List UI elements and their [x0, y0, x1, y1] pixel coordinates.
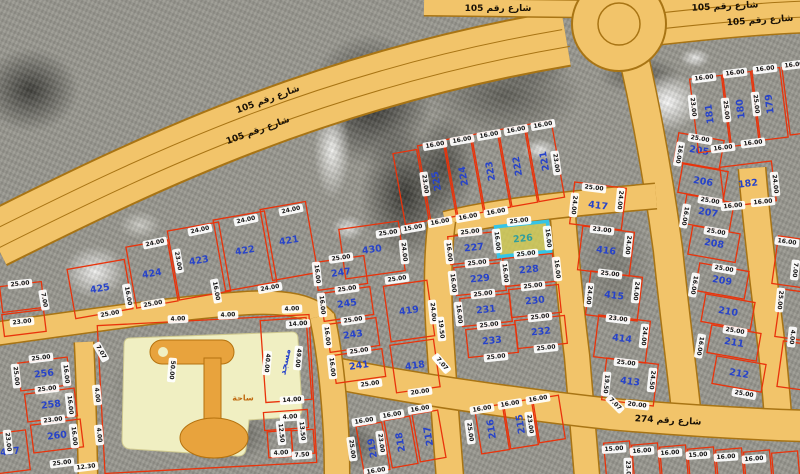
parcel-number: 225 [430, 170, 444, 191]
dimension-label: 16.00 [312, 261, 323, 286]
dimension-label: 16.00 [740, 137, 765, 148]
svg-text:16.00: 16.00 [660, 449, 679, 457]
dimension-label: 19.50 [601, 371, 612, 396]
dimension-label: 16.00 [454, 301, 465, 326]
parcel-number: 216 [485, 418, 499, 440]
dimension-label: 23.00 [605, 313, 630, 324]
dimension-label: 16.00 [750, 197, 775, 208]
dimension-label: 15.00 [601, 444, 626, 454]
dimension-label: 25.00 [346, 345, 371, 357]
dimension-label: 25.00 [464, 419, 476, 444]
parcel-number: 231 [476, 303, 497, 316]
dimension-label: 16.00 [65, 392, 76, 417]
svg-text:7.00: 7.00 [39, 292, 48, 308]
dimension-label: 25.00 [597, 268, 622, 279]
svg-text:4.00: 4.00 [220, 311, 235, 319]
dimension-label: 16.00 [476, 129, 502, 142]
dimension-label: 16.00 [713, 452, 738, 462]
dimension-label: 24.00 [770, 171, 781, 196]
dimension-label: 15.00 [685, 450, 710, 460]
parcel-number: 424 [141, 267, 163, 281]
dimension-label: 16.00 [722, 67, 747, 78]
dimension-label: 23.00 [550, 150, 562, 175]
svg-text:14.00: 14.00 [288, 320, 307, 328]
dimension-label: 25.00 [328, 252, 353, 264]
svg-text:16.00: 16.00 [632, 447, 651, 455]
dimension-label: 25.00 [11, 363, 22, 388]
svg-text:14.00: 14.00 [282, 396, 301, 404]
parcel[interactable] [782, 65, 800, 135]
road-label: شارع رقم 105 [465, 4, 532, 14]
dimension-label: 23.00 [688, 94, 699, 119]
dimension-label: 25.00 [375, 227, 400, 239]
dimension-label: 15.00 [400, 222, 426, 235]
dimension-label: 25.00 [520, 281, 545, 292]
svg-text:25.00: 25.00 [349, 346, 369, 356]
dimension-label: 25.00 [7, 279, 32, 290]
dimension-label: 24.00 [399, 239, 410, 264]
dimension-label: 16.00 [657, 448, 682, 458]
dimension-label: 16.00 [741, 454, 766, 464]
parcel-number: 418 [404, 359, 426, 373]
parcel-number: 206 [692, 175, 714, 189]
parcel-number: 229 [470, 272, 491, 285]
svg-text:23.00: 23.00 [420, 174, 430, 194]
dimension-label: 4.00 [281, 304, 302, 313]
dimension-label: 14.00 [285, 319, 310, 329]
svg-text:23.00: 23.00 [551, 153, 561, 173]
parcel-number: 415 [603, 289, 624, 302]
dimension-label: 23.00 [419, 171, 431, 196]
svg-text:4.00: 4.00 [282, 413, 297, 421]
parcel-number: 414 [611, 332, 632, 345]
parcel-number: 180 [734, 98, 747, 119]
dimension-label: 16.00 [688, 272, 701, 298]
svg-text:16.00: 16.00 [777, 237, 797, 247]
dimension-label: 25.00 [334, 283, 359, 295]
dimension-label: 16.00 [449, 134, 475, 147]
parcel-228[interactable]: 228 [503, 253, 556, 286]
parcel-number: 179 [763, 93, 776, 114]
svg-text:16.00: 16.00 [366, 466, 386, 474]
parcel-number: 421 [278, 234, 299, 248]
svg-text:23.00: 23.00 [624, 460, 632, 474]
dimension-label: 16.00 [691, 72, 716, 83]
dimension-label: 16.00 [407, 403, 433, 415]
dimension-label: 16.00 [752, 63, 777, 74]
parcel-number: 221 [538, 150, 552, 171]
roundabout [571, 0, 667, 72]
mosque-courtyard [158, 347, 168, 357]
parcel-number: 224 [457, 165, 471, 187]
parcel-number: 207 [697, 206, 718, 220]
parcel-number: 247 [330, 266, 351, 280]
parcel-number: 210 [717, 305, 739, 319]
parcel-number: 181 [703, 103, 716, 124]
dimension-label: 16.00 [351, 415, 377, 427]
svg-text:4.00: 4.00 [170, 315, 185, 323]
svg-text:25.00: 25.00 [387, 274, 407, 284]
dimension-label: 16.00 [503, 124, 529, 137]
parcel-number: 245 [336, 297, 357, 311]
dimension-label: 25.00 [476, 320, 501, 331]
svg-text:16.00: 16.00 [716, 453, 735, 461]
dimension-label: 24.00 [142, 236, 168, 249]
parcel-number: 260 [46, 429, 67, 442]
dimension-label: 7.00 [790, 259, 800, 280]
svg-text:4.00: 4.00 [284, 305, 299, 313]
svg-text:15.00: 15.00 [604, 445, 623, 453]
parcel-210[interactable]: 210 [701, 294, 755, 330]
parcel-number: 227 [464, 241, 485, 254]
dimension-label: 16.00 [363, 465, 389, 474]
dimension-label: 4.00 [787, 326, 798, 347]
svg-text:25.00: 25.00 [337, 284, 357, 294]
dimension-label: 23.00 [623, 458, 632, 474]
dimension-label: 23.00 [40, 414, 65, 425]
parcel-number: 422 [234, 244, 255, 258]
dimension-label: 25.00 [49, 457, 74, 468]
dimension-label: 25.00 [464, 258, 489, 269]
dimension-label: 25.00 [533, 343, 558, 354]
parcel-number: 223 [484, 160, 498, 181]
parcel-222[interactable]: 222 [498, 125, 537, 206]
svg-text:16.00: 16.00 [744, 455, 763, 463]
dimension-label: 25.00 [34, 383, 59, 394]
parcel-number: 243 [342, 328, 363, 342]
parcel-218[interactable]: 218 [384, 416, 418, 468]
dimension-label: 16.00 [781, 59, 800, 70]
parcel-233[interactable]: 233 [466, 324, 519, 357]
dimension-label: 23.00 [589, 224, 614, 235]
dimension-label: 16.00 [379, 409, 405, 421]
svg-text:25.00: 25.00 [331, 253, 351, 263]
dimension-label: 25.00 [613, 357, 638, 368]
dimension-label: 7.50 [291, 450, 312, 460]
dimension-label: 16.00 [422, 139, 448, 152]
dimension-label: 16.00 [500, 260, 511, 285]
map-viewport[interactable]: 4254244234224214302472452432414194182252… [0, 0, 800, 474]
parcel-number: 416 [595, 244, 616, 257]
mosque-corridor [204, 358, 221, 422]
dimension-label: 25.00 [470, 289, 495, 300]
dimension-label: 25.00 [483, 352, 508, 363]
parcel-number: 211 [723, 336, 744, 350]
dimension-label: 25.00 [721, 97, 732, 122]
svg-text:15.00: 15.00 [688, 451, 707, 459]
parcel-number: 419 [398, 304, 419, 318]
svg-text:7.50: 7.50 [294, 451, 309, 459]
parcel-number: 212 [728, 367, 749, 381]
dimension-label: 25.00 [731, 388, 757, 401]
dimension-label: 4.00 [217, 310, 238, 319]
parcel-number: 222 [511, 155, 525, 176]
parcel-number: 209 [711, 274, 732, 288]
annotation-text: ساحة [232, 394, 254, 403]
cadastral-overlay: 4254244234224214302472452432414194182252… [0, 0, 800, 474]
mosque-dome [180, 418, 248, 458]
dimension-label: 25.00 [28, 352, 53, 363]
parcel-number: 230 [525, 294, 546, 307]
dimension-label: 25.00 [340, 314, 365, 326]
dimension-label: 4.00 [270, 448, 291, 458]
parcel-number: 413 [619, 375, 640, 388]
parcel-number: 232 [531, 325, 552, 338]
parcel-number: 423 [188, 254, 209, 268]
dimension-label: 25.00 [751, 91, 762, 116]
dimension-label: 16.00 [710, 142, 735, 153]
svg-text:25.00: 25.00 [343, 315, 363, 325]
parcel-number: 256 [33, 367, 54, 380]
dimension-label: 16.00 [61, 361, 72, 386]
dimension-label: 24.00 [584, 282, 595, 307]
dimension-label: 16.00 [530, 119, 556, 132]
parcel-number: 228 [519, 263, 540, 276]
svg-text:25.00: 25.00 [465, 422, 475, 442]
parcel-number: 226 [513, 232, 534, 245]
svg-text:25.00: 25.00 [378, 228, 398, 238]
parcel-number: 208 [703, 237, 725, 251]
parcel[interactable] [772, 451, 800, 474]
parcel-212[interactable]: 212 [712, 356, 766, 392]
parcel-number: 258 [40, 398, 61, 411]
mosque-footprint [122, 332, 302, 458]
parcel-number: 218 [394, 431, 408, 453]
dimension-label: 13.50 [297, 418, 308, 443]
parcel-number: 233 [482, 334, 503, 347]
svg-text:4.00: 4.00 [273, 449, 288, 457]
parcel-number: 425 [89, 282, 110, 296]
dimension-label: 4.00 [167, 314, 188, 323]
dimension-label: 25.00 [527, 312, 552, 323]
dimension-label: 16.00 [694, 333, 707, 359]
parcel-number: 430 [361, 243, 383, 257]
dimension-label: 16.00 [629, 446, 654, 456]
dimension-label: 12.50 [276, 420, 287, 445]
dimension-label: 14.00 [279, 395, 304, 405]
